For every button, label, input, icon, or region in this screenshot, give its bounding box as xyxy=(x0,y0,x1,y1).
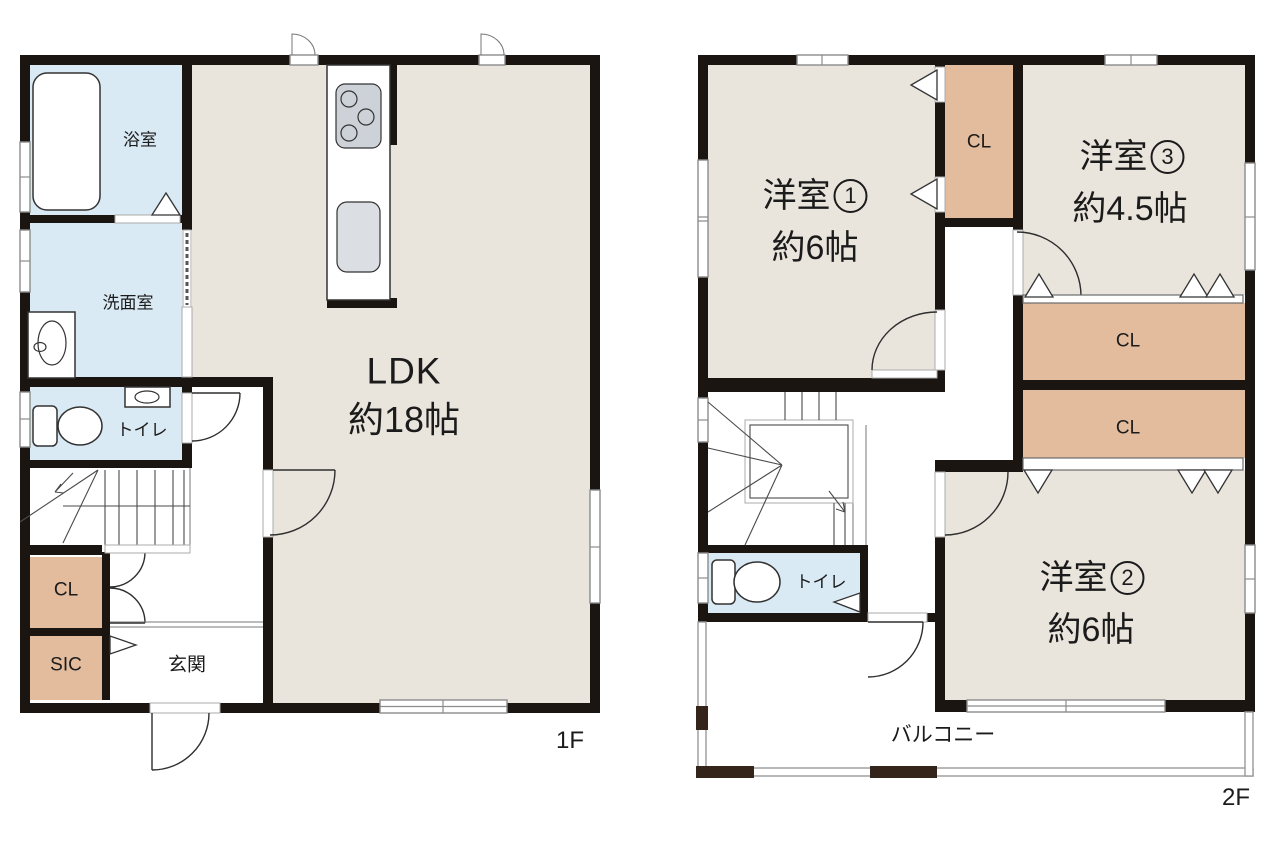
bedroom1-door-opening xyxy=(935,310,945,370)
window-kitchen-top xyxy=(290,55,318,65)
toilet1f-door-opening xyxy=(182,393,192,443)
washroom-sliding-door xyxy=(182,307,192,377)
room-label-closet-upper: CL xyxy=(1116,332,1140,351)
room-label-bath: 浴室 xyxy=(123,132,157,149)
bedroom3-number-badge: 3 xyxy=(1151,140,1185,174)
staircase-1f xyxy=(20,468,190,553)
bedroom3-door-opening xyxy=(1013,230,1023,295)
room-label-bedroom3-size: 約4.5帖 xyxy=(1072,192,1187,226)
room-label-entrance: 玄関 xyxy=(168,656,206,675)
bathtub-icon xyxy=(33,73,100,210)
room-label-bedroom2: 洋室2 xyxy=(1040,561,1145,595)
bedroom2-closet-opening xyxy=(1023,458,1243,470)
toilet1f-icon xyxy=(33,406,57,446)
bath-door-opening xyxy=(115,215,180,223)
stair-landing-step xyxy=(105,545,190,553)
stair-railing xyxy=(745,420,853,503)
room-label-closet-bedroom1: CL xyxy=(967,133,991,152)
room-label-ldk: LDK xyxy=(367,353,442,390)
bedroom1-floor xyxy=(708,65,935,378)
staircase-2f xyxy=(708,392,866,545)
balcony-railing-left xyxy=(698,622,706,776)
bedroom3-name: 洋室 xyxy=(1080,140,1148,174)
closet1f-double-doors xyxy=(110,552,145,623)
room-label-bedroom2-size: 約6帖 xyxy=(1048,613,1135,647)
room-label-shoe-closet: SIC xyxy=(50,656,82,675)
room-label-closet-lower: CL xyxy=(1116,419,1140,438)
room-label-ldk-size: 約18帖 xyxy=(348,402,460,438)
room-label-closet-1f: CL xyxy=(54,581,78,600)
bedroom1-number-badge: 1 xyxy=(834,179,868,213)
room-label-toilet-2f: トイレ xyxy=(796,574,847,591)
toilet1f-door-swing xyxy=(192,393,240,441)
floor-label-1f: 1F xyxy=(556,729,584,753)
awning-window-arc xyxy=(292,34,315,55)
room-label-balcony: バルコニー xyxy=(891,725,996,746)
ldk-door-opening xyxy=(263,470,273,537)
bedroom2-number-badge: 2 xyxy=(1111,561,1145,595)
kitchen-sink-icon xyxy=(337,202,380,272)
balcony-door-swing xyxy=(868,622,923,677)
hand-basin-icon xyxy=(125,387,170,407)
awning-window-arc xyxy=(481,34,504,55)
floorplan-page: 浴室 洗面室 トイレ CL SIC 玄関 LDK 約18帖 1F 洋室1 約6帖… xyxy=(0,0,1280,850)
stairs-up-arrow xyxy=(55,473,73,493)
floorplan-canvas xyxy=(0,0,1280,850)
room-label-washroom: 洗面室 xyxy=(103,295,154,312)
window-bedroom1-left xyxy=(698,160,708,277)
room-label-bedroom1-size: 約6帖 xyxy=(772,231,859,265)
balcony-door-opening xyxy=(868,613,927,622)
bedroom1-door-leaf xyxy=(872,370,937,378)
floor2-fixtures xyxy=(712,560,780,604)
shoe-closet-door-icon xyxy=(110,636,136,654)
room-label-bedroom3: 洋室3 xyxy=(1080,140,1185,174)
bedroom3-floor xyxy=(1023,65,1245,295)
window-ldk-top xyxy=(479,55,505,65)
entrance-door-opening xyxy=(150,703,220,713)
balcony-railing-right xyxy=(1245,712,1253,776)
floor1-plan xyxy=(20,34,600,770)
entrance-door-swing xyxy=(152,713,209,770)
floor-label-2f: 2F xyxy=(1222,786,1250,810)
room-label-bedroom1: 洋室1 xyxy=(763,179,868,213)
bedroom2-name: 洋室 xyxy=(1040,561,1108,595)
balcony-railing-bottom xyxy=(698,768,1253,776)
toilet2f-icon xyxy=(712,560,735,604)
room-label-toilet-1f: トイレ xyxy=(117,422,168,439)
bedroom1-name: 洋室 xyxy=(763,179,831,213)
bedroom2-door-opening xyxy=(935,472,945,537)
